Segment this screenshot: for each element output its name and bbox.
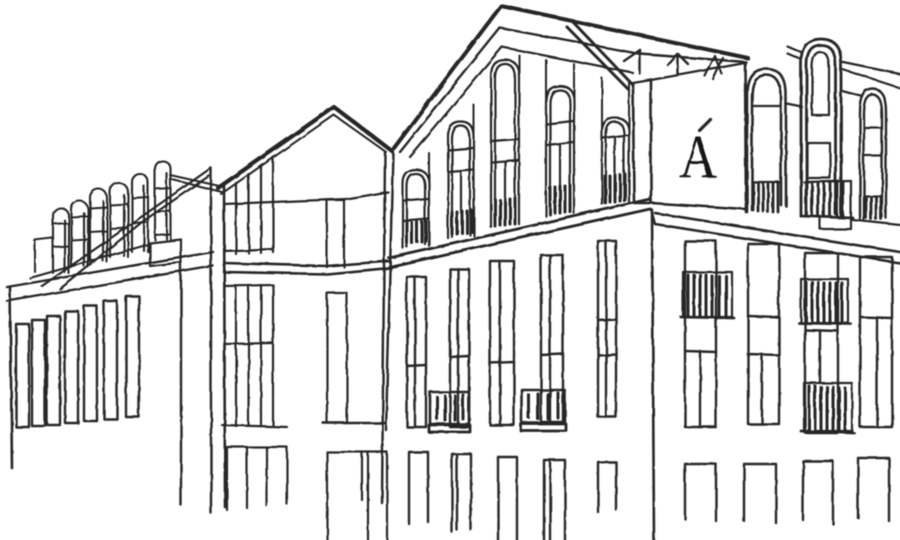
svg-text:A: A (680, 124, 718, 192)
